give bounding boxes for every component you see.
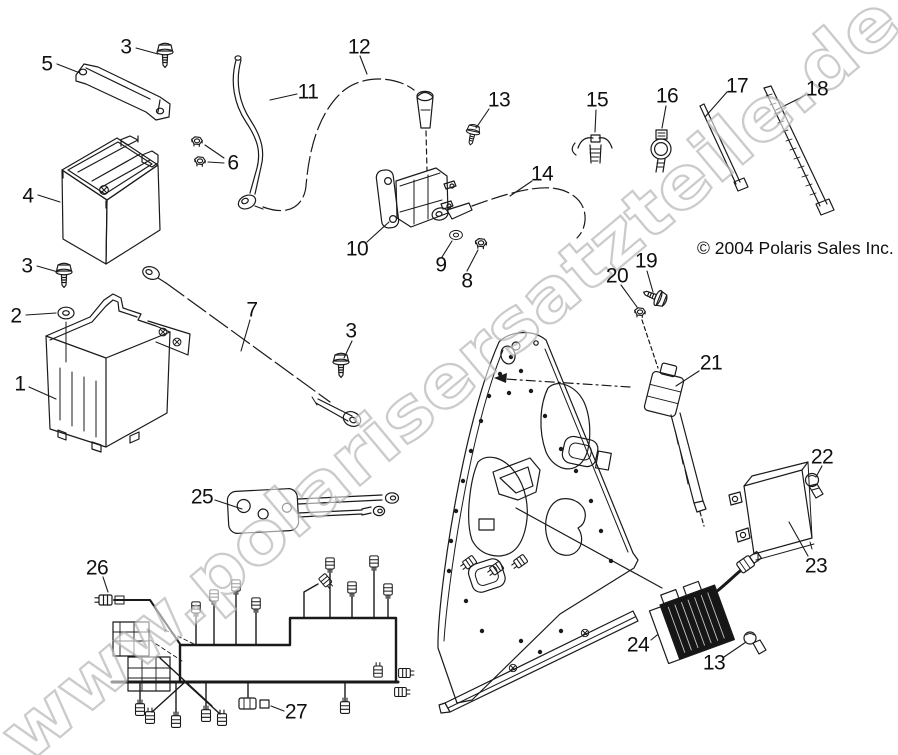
callout-10: 10 bbox=[346, 239, 368, 260]
wire-clip bbox=[572, 135, 612, 163]
harness-connector-27 bbox=[239, 698, 269, 709]
bus-bar-bracket bbox=[227, 488, 399, 534]
shoulder-bolt bbox=[806, 474, 824, 499]
callout-12: 12 bbox=[348, 37, 370, 58]
callout-21: 21 bbox=[700, 353, 722, 374]
callout-9: 9 bbox=[435, 255, 446, 276]
battery-cable-negative bbox=[233, 56, 263, 212]
cdi-box bbox=[729, 462, 814, 561]
callout-27: 27 bbox=[285, 702, 307, 723]
callout-23: 23 bbox=[805, 556, 827, 577]
copyright-text: © 2004 Polaris Sales Inc. bbox=[697, 238, 894, 259]
callout-17: 17 bbox=[726, 76, 748, 97]
mount-nut bbox=[635, 308, 645, 318]
callout-25: 25 bbox=[191, 487, 213, 508]
callout-7: 7 bbox=[246, 300, 257, 321]
starter-solenoid bbox=[376, 168, 456, 229]
callout-22: 22 bbox=[811, 447, 833, 468]
callout-19: 19 bbox=[635, 251, 657, 272]
battery-box-bolt bbox=[56, 263, 72, 287]
callout-4: 4 bbox=[22, 186, 33, 207]
exploded-parts-drawing bbox=[0, 0, 898, 755]
washer bbox=[58, 307, 74, 319]
cable-bolt bbox=[333, 353, 349, 377]
frame-panel bbox=[438, 332, 638, 713]
callout-3: 3 bbox=[21, 256, 32, 277]
callout-6: 6 bbox=[227, 153, 238, 174]
callout-3: 3 bbox=[120, 37, 131, 58]
spark-sensor bbox=[644, 361, 706, 526]
callout-15: 15 bbox=[586, 90, 608, 111]
callout-1: 1 bbox=[14, 374, 25, 395]
cable-clamp bbox=[651, 130, 671, 172]
callout-26: 26 bbox=[86, 558, 108, 579]
solenoid-washer bbox=[450, 230, 463, 239]
callout-13: 13 bbox=[703, 653, 725, 674]
regulator-bolt bbox=[744, 632, 766, 654]
mount-bolt bbox=[641, 285, 669, 309]
solenoid-nut bbox=[476, 239, 487, 249]
callout-11: 11 bbox=[298, 82, 319, 103]
callout-20: 20 bbox=[606, 266, 628, 287]
panel-to-regulator-line bbox=[516, 508, 662, 588]
cable-tie bbox=[700, 104, 748, 191]
jumper-cable bbox=[141, 264, 363, 429]
terminal-nut bbox=[195, 157, 205, 167]
cable-tie-long bbox=[764, 86, 834, 215]
solenoid-bolt bbox=[464, 123, 482, 146]
callout-16: 16 bbox=[656, 86, 678, 107]
callout-18: 18 bbox=[806, 79, 828, 100]
callout-14: 14 bbox=[531, 164, 553, 185]
voltage-regulator bbox=[646, 550, 763, 664]
strap-bolt bbox=[157, 43, 173, 67]
parts-diagram-page: www.polarisersatzteile.de © 2004 Polaris… bbox=[0, 0, 898, 755]
callout-2: 2 bbox=[10, 306, 21, 327]
callout-13: 13 bbox=[488, 90, 510, 111]
callout-8: 8 bbox=[461, 271, 472, 292]
callout-5: 5 bbox=[41, 54, 52, 75]
battery-strap bbox=[76, 64, 170, 120]
terminal-nut bbox=[192, 137, 202, 147]
battery-box bbox=[46, 294, 190, 452]
callout-24: 24 bbox=[627, 635, 649, 656]
callout-3: 3 bbox=[345, 321, 356, 342]
assembly-line bbox=[642, 320, 658, 368]
battery bbox=[62, 136, 160, 264]
solenoid-cable bbox=[263, 79, 433, 211]
